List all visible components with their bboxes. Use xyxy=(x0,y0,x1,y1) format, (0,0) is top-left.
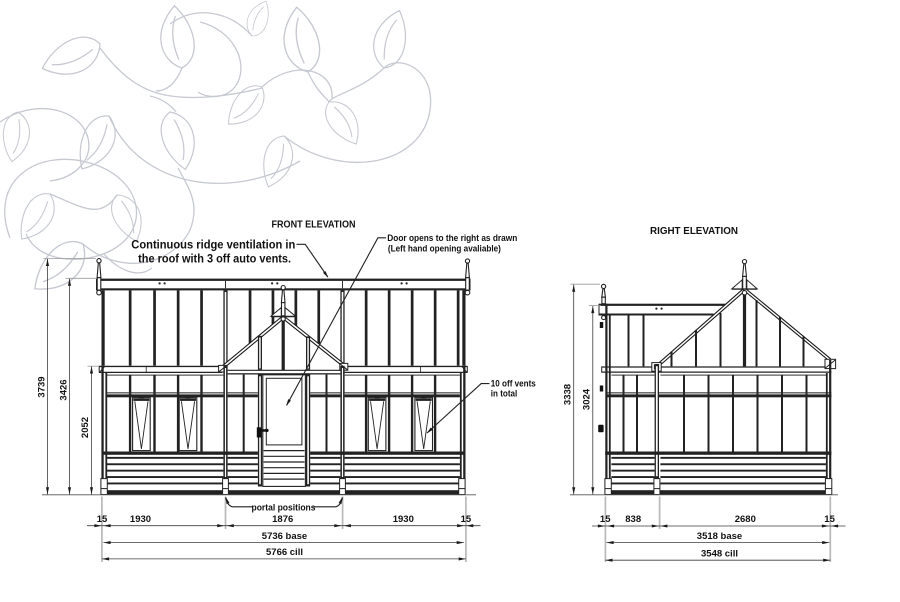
svg-text:10 off vents: 10 off vents xyxy=(491,378,536,388)
svg-text:1930: 1930 xyxy=(130,514,151,525)
svg-text:3338: 3338 xyxy=(563,384,574,405)
svg-text:15: 15 xyxy=(97,514,108,525)
svg-text:2052: 2052 xyxy=(80,417,91,438)
svg-text:5766 cill: 5766 cill xyxy=(266,547,303,558)
svg-text:15: 15 xyxy=(824,514,835,525)
svg-text:1930: 1930 xyxy=(393,514,414,525)
svg-text:3518 base: 3518 base xyxy=(697,531,742,542)
svg-text:portal positions: portal positions xyxy=(252,503,316,513)
svg-text:(Left hand opening avaliable): (Left hand opening avaliable) xyxy=(388,243,501,253)
svg-text:Door opens to the right as dra: Door opens to the right as drawn xyxy=(387,233,517,243)
svg-text:838: 838 xyxy=(625,514,641,525)
svg-text:3426: 3426 xyxy=(59,379,70,400)
svg-text:3548 cill: 3548 cill xyxy=(701,549,738,560)
svg-text:3024: 3024 xyxy=(582,388,593,410)
svg-text:RIGHT ELEVATION: RIGHT ELEVATION xyxy=(650,226,738,237)
svg-text:3739: 3739 xyxy=(37,376,48,397)
svg-text:in total: in total xyxy=(491,389,518,399)
svg-text:1876: 1876 xyxy=(272,514,293,525)
svg-text:2680: 2680 xyxy=(735,514,756,525)
svg-text:FRONT ELEVATION: FRONT ELEVATION xyxy=(272,220,356,231)
svg-text:Continuous ridge ventilation i: Continuous ridge ventilation in xyxy=(131,238,295,252)
svg-text:the roof with 3 off auto vents: the roof with 3 off auto vents. xyxy=(138,252,291,266)
svg-text:15: 15 xyxy=(461,514,472,525)
svg-text:15: 15 xyxy=(600,514,611,525)
svg-text:5736 base: 5736 base xyxy=(262,531,307,542)
